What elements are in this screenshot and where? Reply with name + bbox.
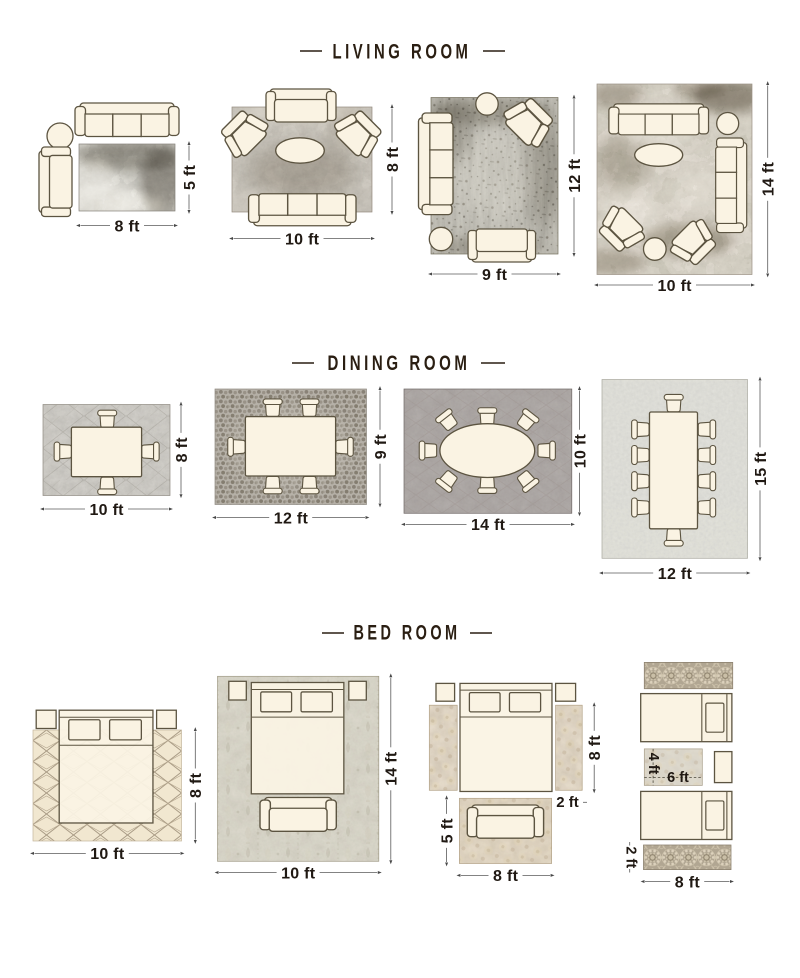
svg-text:12 ft: 12 ft	[567, 158, 584, 193]
svg-text:15 ft: 15 ft	[753, 451, 770, 486]
svg-text:8 ft: 8 ft	[675, 874, 701, 891]
svg-text:BED ROOM: BED ROOM	[354, 622, 461, 645]
svg-text:8 ft: 8 ft	[587, 735, 604, 761]
svg-text:10 ft: 10 ft	[90, 502, 125, 519]
svg-text:2 ft: 2 ft	[556, 794, 579, 811]
svg-text:8 ft: 8 ft	[493, 868, 519, 885]
svg-text:14 ft: 14 ft	[761, 162, 778, 197]
svg-text:12 ft: 12 ft	[658, 566, 693, 583]
svg-text:10 ft: 10 ft	[90, 846, 125, 863]
svg-text:LIVING ROOM: LIVING ROOM	[333, 41, 472, 64]
svg-text:5 ft: 5 ft	[182, 164, 199, 190]
svg-text:8 ft: 8 ft	[115, 218, 141, 235]
svg-text:8 ft: 8 ft	[188, 772, 205, 798]
svg-text:9 ft: 9 ft	[482, 267, 508, 284]
svg-text:10 ft: 10 ft	[658, 278, 693, 295]
svg-text:14 ft: 14 ft	[384, 751, 401, 786]
svg-text:2 ft: 2 ft	[623, 846, 639, 868]
svg-text:9 ft: 9 ft	[373, 434, 390, 460]
svg-text:10 ft: 10 ft	[572, 434, 589, 469]
svg-text:5 ft: 5 ft	[439, 818, 456, 844]
svg-text:6 ft: 6 ft	[667, 770, 689, 786]
svg-text:4 ft: 4 ft	[645, 753, 661, 775]
svg-text:DINING ROOM: DINING ROOM	[328, 352, 471, 375]
svg-text:8 ft: 8 ft	[385, 146, 402, 172]
svg-text:10 ft: 10 ft	[285, 231, 320, 248]
svg-text:8 ft: 8 ft	[174, 437, 191, 463]
svg-text:12 ft: 12 ft	[274, 510, 309, 527]
svg-text:10 ft: 10 ft	[281, 865, 316, 882]
svg-text:14 ft: 14 ft	[471, 517, 506, 534]
